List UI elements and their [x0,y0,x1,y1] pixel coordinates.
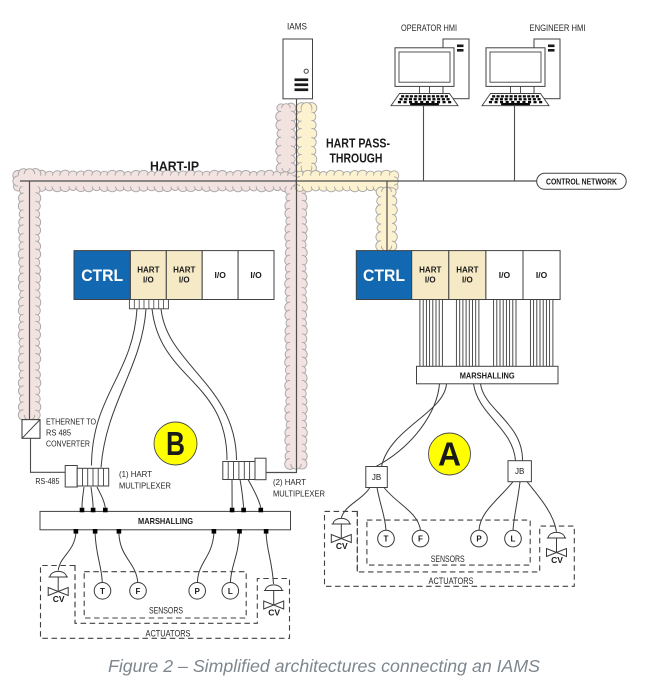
svg-text:CTRL: CTRL [363,267,405,285]
svg-text:OPERATOR HMI: OPERATOR HMI [401,23,457,33]
svg-text:T: T [100,587,105,596]
svg-text:HART: HART [137,266,159,275]
svg-text:F: F [418,535,423,544]
svg-text:I/O: I/O [179,276,190,285]
svg-text:HART: HART [173,266,195,275]
svg-text:CV: CV [551,555,563,565]
svg-text:I/O: I/O [499,270,511,280]
svg-text:(2) HART: (2) HART [273,477,307,487]
svg-text:RS 485: RS 485 [46,428,71,438]
svg-text:THROUGH: THROUGH [330,151,383,166]
svg-text:MARSHALLING: MARSHALLING [138,516,193,526]
svg-text:Figure 2 – Simplified architec: Figure 2 – Simplified architectures conn… [108,656,540,676]
svg-text:CV: CV [53,594,65,604]
svg-text:P: P [195,587,201,596]
svg-text:MULTIPLEXER: MULTIPLEXER [273,489,325,499]
svg-text:L: L [228,587,233,596]
svg-text:(1) HART: (1) HART [119,469,153,479]
svg-text:MULTIPLEXER: MULTIPLEXER [119,481,171,491]
svg-text:MARSHALLING: MARSHALLING [460,371,515,381]
svg-text:P: P [476,535,482,544]
svg-text:JB: JB [372,473,381,482]
svg-text:ACTUATORS: ACTUATORS [146,628,191,638]
svg-text:SENSORS: SENSORS [149,606,183,616]
svg-text:IAMS: IAMS [287,22,307,32]
svg-text:I/O: I/O [462,276,473,285]
svg-text:ACTUATORS: ACTUATORS [429,576,474,586]
svg-text:I/O: I/O [425,276,436,285]
svg-text:HART-IP: HART-IP [150,159,199,174]
svg-text:ENGINEER HMI: ENGINEER HMI [530,23,586,33]
svg-text:CV: CV [336,541,348,551]
svg-text:F: F [136,587,141,596]
svg-text:CTRL: CTRL [81,267,123,285]
svg-text:SENSORS: SENSORS [431,554,465,564]
svg-text:L: L [511,535,516,544]
svg-text:HART: HART [419,266,441,275]
svg-text:CONTROL NETWORK: CONTROL NETWORK [546,177,617,186]
svg-text:B: B [166,425,185,462]
svg-text:CV: CV [268,608,280,618]
svg-text:JB: JB [515,467,524,476]
svg-text:RS-485: RS-485 [35,476,59,486]
svg-text:I/O: I/O [214,270,226,280]
svg-text:A: A [438,436,461,473]
svg-text:I/O: I/O [143,276,154,285]
svg-text:ETHERNET TO: ETHERNET TO [46,417,96,427]
svg-text:CONVERTER: CONVERTER [46,439,90,449]
svg-text:I/O: I/O [250,270,262,280]
svg-text:I/O: I/O [536,270,548,280]
svg-text:HART PASS-: HART PASS- [326,136,390,151]
svg-text:T: T [384,535,389,544]
svg-text:HART: HART [456,266,478,275]
